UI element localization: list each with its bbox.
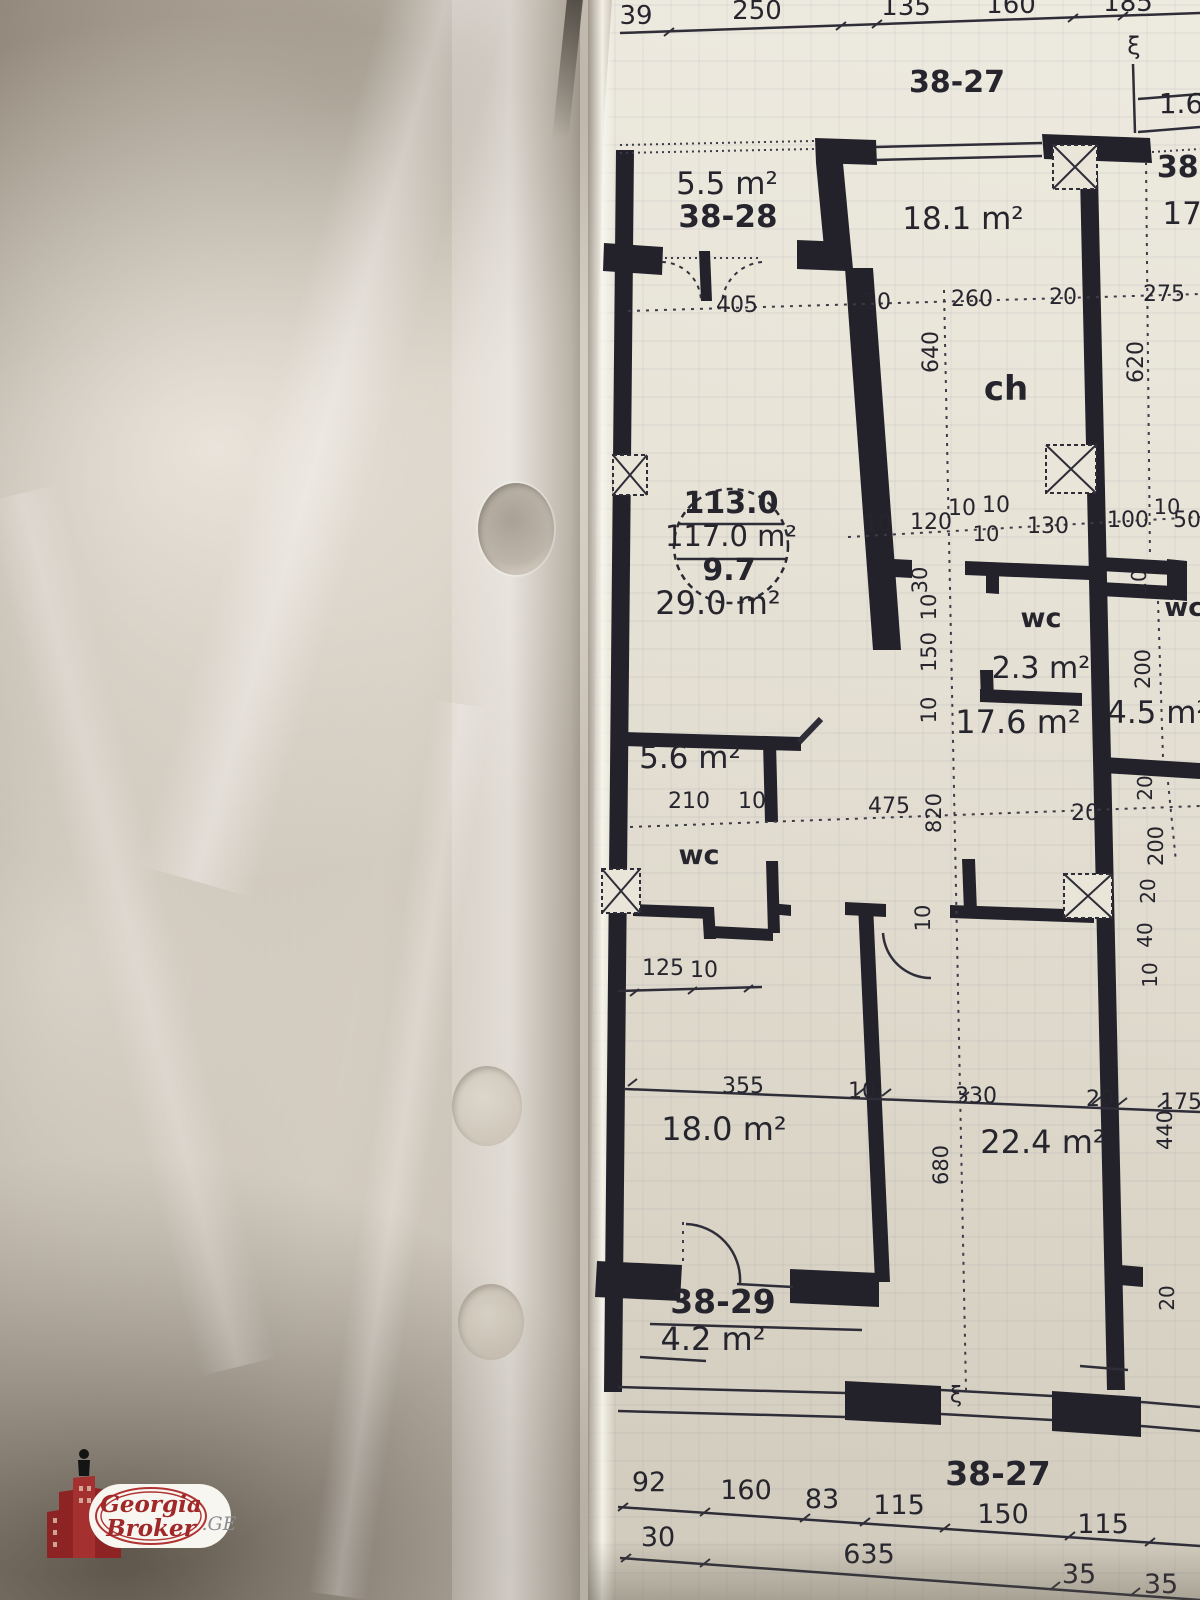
room-area-label: 29.0 m² [655,584,780,622]
room-area-label: 17. [1162,196,1200,232]
dimension-label: 125 [642,956,684,981]
paper-bottom-shade [588,1540,1200,1600]
floor-plan-drawing: 38-271.65.5 m²38-2818.1 m²38-17.ch113.01… [0,0,1200,1600]
unit-number-label: 38-29 [670,1282,776,1321]
dimension-label: 135 [881,0,931,22]
room-area-label: 22.4 m² [980,1123,1105,1161]
dimension-label: 210 [668,789,710,814]
dimension-label: 150 [917,632,941,672]
dimension-label: 475 [868,794,910,819]
room-area-label: 18.0 m² [661,1110,786,1148]
dimension-label: 40 [1133,922,1157,947]
georgia-broker-watermark: Georgia Broker .GE [33,1440,238,1565]
dimension-label: 1.6 [1159,87,1200,120]
dimension-label: 20 [1155,1285,1179,1310]
dimension-label: 150 [977,1499,1029,1530]
room-area-label: 18.1 m² [902,201,1024,237]
dimension-label: 10 [848,1079,876,1104]
dimension-label: 820 [922,793,946,833]
room-name-label: wc [1164,593,1200,623]
dimension-label: 20 [1136,878,1160,903]
room-name-label: ch [984,369,1028,409]
person-silhouette-icon [78,1449,90,1476]
unit-number-label: 38-28 [678,199,777,235]
room-name-label: wc [679,840,720,871]
unit-number-label: 38- [1157,150,1200,185]
dimension-label: 160 [720,1475,772,1506]
dimension-label: 10 [917,697,941,724]
unit-number-label: 38-27 [909,65,1005,100]
dimension-label: 200 [1144,826,1168,866]
brand-domain-suffix: .GE [201,1513,236,1535]
dimension-label: 260 [951,287,993,312]
dimension-label: 640 [919,331,944,373]
area-stamp-value: 113.0 [684,486,779,521]
section-break-mark: ξ [950,1383,962,1408]
section-break-mark: ξ [1127,32,1140,60]
dimension-label: 39 [619,1,652,31]
dimension-label: 440 [1153,1110,1177,1150]
dimension-label: 275 [1143,282,1185,307]
photo-of-floor-plan: 38-271.65.5 m²38-2818.1 m²38-17.ch113.01… [0,0,1200,1600]
room-area-label: 17.6 m² [955,703,1080,741]
dimension-label: 200 [1131,649,1155,689]
dimension-label: 185 [1103,0,1153,18]
dimension-label: 10 [1127,569,1151,594]
dimension-label: 10 [917,594,941,621]
dimension-label: 10 [948,496,976,521]
room-area-label: 5.6 m² [639,740,741,776]
dimension-label: 10 [973,522,1000,546]
dimension-label: 115 [873,1490,925,1521]
dimension-label: 115 [1077,1509,1129,1540]
dimension-label: 30 [908,567,932,594]
walls [595,134,1200,1437]
dimension-label: 83 [805,1484,839,1515]
brand-name-top: Georgia [100,1491,201,1518]
dimension-label: 405 [716,293,758,318]
dimension-label: 20 [1071,801,1099,826]
dimension-label: 10 [864,512,892,537]
dimension-label: 330 [955,1084,997,1109]
dimension-label: 10 [1138,962,1162,987]
area-stamp-value: 9.7 [702,553,755,588]
room-area-label: 5.5 m² [676,166,778,202]
unit-number-label: 38-27 [945,1454,1051,1493]
dimension-label: 20 [1133,775,1157,800]
dimension-label: 160 [986,0,1036,20]
dimension-label: 355 [722,1074,764,1099]
room-area-label: 2.3 m² [992,651,1091,686]
brand-name-bottom: Broker [105,1515,197,1542]
area-stamp-value: 117.0 m² [665,519,797,553]
dimension-label: 20 [1086,1087,1114,1112]
room-name-label: wc [1021,603,1062,634]
room-area-label: 4.2 m² [660,1320,765,1358]
dimension-label: 120 [910,510,952,535]
dimension-label: 50 [1173,508,1200,533]
dimension-label: 92 [632,1467,666,1498]
dimension-label: 10 [982,493,1010,518]
dimension-label: 10 [863,290,891,315]
dimension-label: 620 [1124,341,1149,383]
dimension-label: 10 [911,905,935,932]
dimension-label: 100 [1107,508,1149,533]
dimension-label: 20 [1049,285,1077,310]
dimension-label: 680 [929,1145,953,1185]
dimension-label: 130 [1027,514,1069,539]
dimension-label: 10 [690,958,718,983]
room-area-label: 4.5 m² [1107,695,1200,731]
dimension-label: 10 [738,789,766,814]
logo-pill: Georgia Broker .GE [89,1484,237,1548]
dimension-label: 250 [732,0,782,26]
